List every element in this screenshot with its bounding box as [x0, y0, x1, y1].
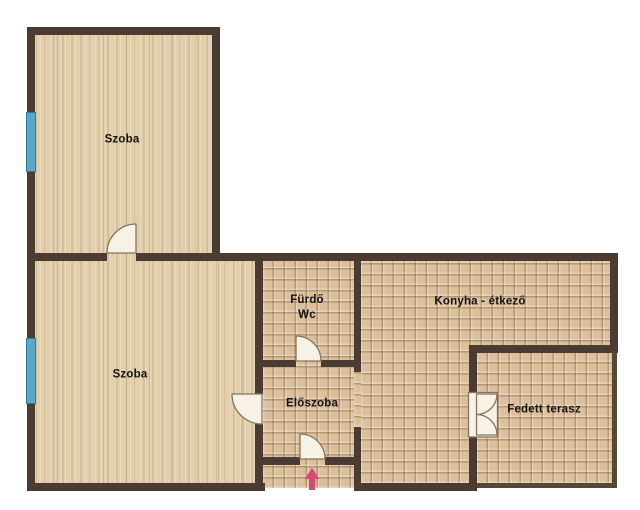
- window-szoba-top: [26, 112, 36, 172]
- wall-room-divider-right: [136, 253, 220, 261]
- wall-eloszoba-bottom-right: [325, 457, 361, 465]
- wall-szoba-right-upper: [255, 253, 263, 394]
- wall-room-divider-left: [27, 253, 107, 261]
- wall-terasz-bottom: [477, 483, 617, 488]
- room-label-terasz: Fedett terasz: [507, 403, 581, 418]
- wall-konyha-right: [610, 253, 618, 351]
- wall-middle-top: [220, 253, 618, 261]
- floor-passage: [354, 372, 361, 427]
- window-szoba-bottom: [26, 338, 36, 404]
- room-label-szoba-bottom: Szoba: [113, 368, 148, 383]
- wall-top-room-right: [212, 27, 220, 253]
- wall-terasz-right: [612, 351, 617, 488]
- floor-terasz: [477, 353, 612, 483]
- wall-konyha-bottom: [354, 483, 477, 491]
- room-label-furdo-wc: Fürdő Wc: [290, 293, 324, 323]
- room-label-szoba-top: Szoba: [105, 133, 140, 148]
- wall-top-room-top: [27, 27, 220, 35]
- wall-furdo-bottom-left: [255, 360, 296, 367]
- room-label-eloszoba: Előszoba: [286, 397, 338, 412]
- wall-furdo-konyha: [354, 253, 361, 372]
- floor-eloszoba: [263, 360, 354, 465]
- wall-eloszoba-bottom-left: [255, 457, 300, 465]
- wall-szoba-bottom: [27, 483, 265, 491]
- floor-plan: Szoba Szoba Fürdő Wc Konyha - étkező Elő…: [0, 0, 640, 510]
- wall-terasz-left-upper: [469, 353, 477, 393]
- wall-terasz-top: [469, 345, 618, 353]
- room-label-konyha: Konyha - étkező: [434, 295, 525, 310]
